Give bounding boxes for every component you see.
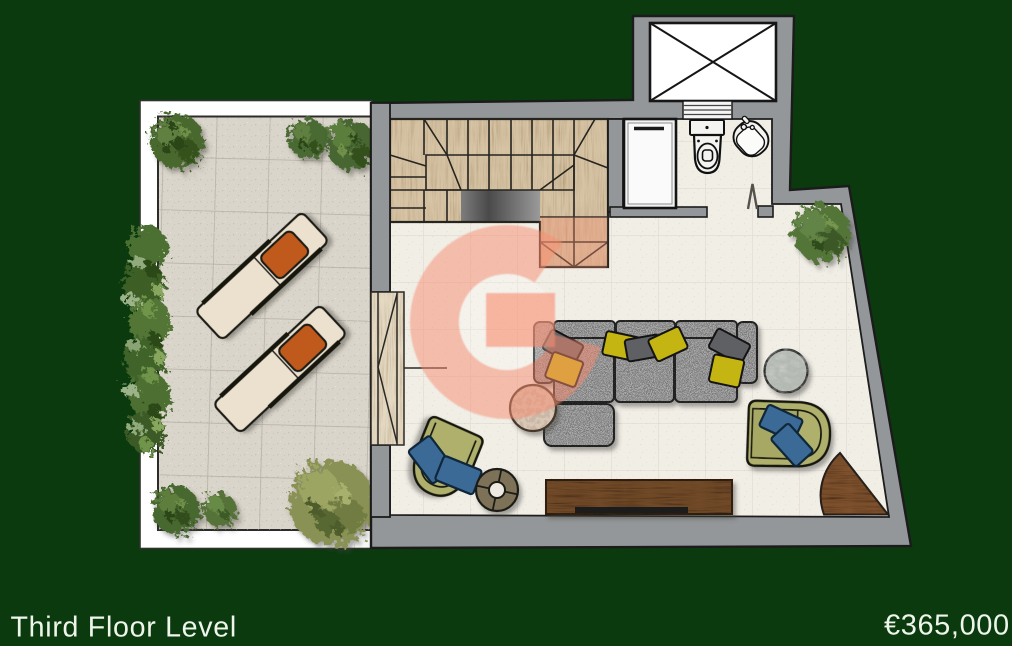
svg-text:Third Floor Level: Third Floor Level bbox=[11, 611, 237, 643]
svg-text:€365,000: €365,000 bbox=[884, 610, 1010, 642]
